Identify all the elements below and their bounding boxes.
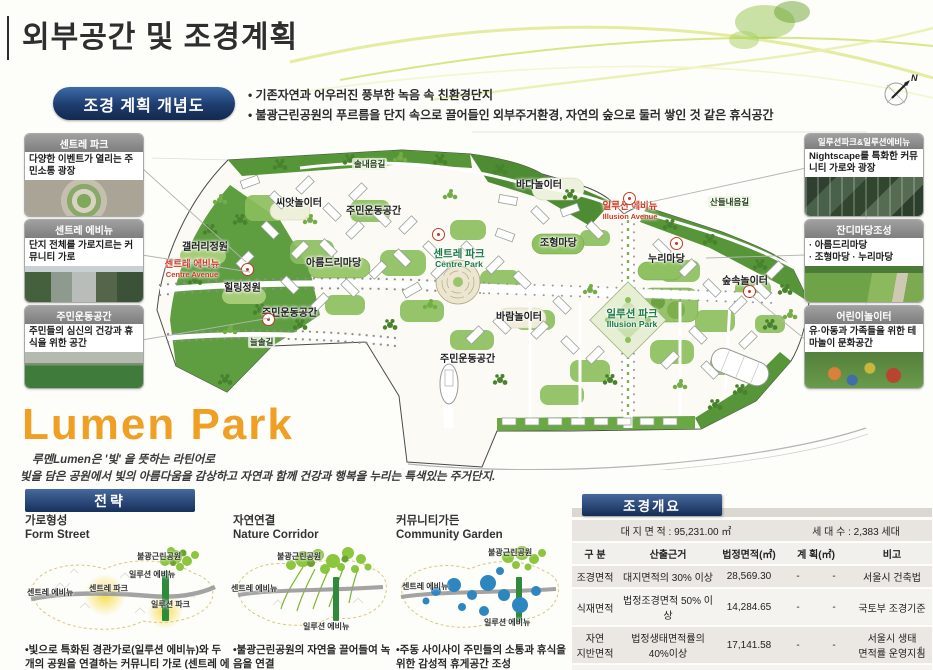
map-label-centre-park: 센트레 파크Centre Park — [422, 248, 496, 270]
lumen-note-1: 루멘Lumen은 '빛' 을 뜻하는 라틴어로 — [32, 451, 215, 467]
map-label-exercise-area-1: 주민운동공간 — [346, 202, 401, 217]
callout-title: 센트레 에비뉴 — [25, 220, 143, 238]
map-label-illusion-park: 일루션 파크Illusion Park — [594, 308, 670, 330]
strategy-header: 전략 — [25, 489, 195, 512]
strategy-caption: •불광근린공원의 자연을 끌어들여 녹음을 연결 — [233, 643, 391, 670]
callout-desc: 다양한 이벤트가 열리는 주민소통 광장 — [25, 152, 143, 180]
households-value: 세 대 수 : 2,383 세대 — [780, 520, 932, 541]
photo-centre-avenue — [25, 266, 143, 302]
map-label-seed-playground: 씨앗놀이터 — [276, 194, 322, 209]
table-row: 식재면적 법정조경면적 50% 이상 14,284.65 - - 국토부 조경기… — [572, 589, 932, 625]
map-label-gallery-garden: 갤러리정원 — [182, 238, 228, 253]
callout-centre-park: 센트레 파크 다양한 이벤트가 열리는 주민소통 광장 — [24, 133, 144, 217]
map-label-sea-playground: 바다놀이터 — [516, 176, 562, 191]
map-label-healing-garden: 힐링정원 — [224, 279, 261, 294]
map-label-areumdeuri-yard: 아름드리마당 — [306, 254, 361, 269]
map-marker — [262, 313, 275, 326]
map-label-neulsol-trail: 늘솔길 — [248, 336, 275, 348]
photo-centre-park — [25, 180, 143, 216]
callout-desc: 단지 전체를 가로지르는 커뮤니티 가로 — [25, 238, 143, 266]
map-label-solnaeum-trail: 솔내음길 — [352, 158, 387, 170]
page-title: 외부공간 및 조경계획 — [22, 12, 298, 56]
callout-title: 센트레 파크 — [25, 134, 143, 152]
col-category: 구 분 — [572, 543, 618, 564]
strategy-diagram-community-garden: 불광근린공원 센트레 에비뉴 일루션 에비뉴 — [396, 543, 566, 643]
diagram-label: 센트레 파크 — [89, 585, 128, 594]
lumen-note-2: 빛을 담은 공원에서 빛의 아름다움을 감상하고 자연과 함께 건강과 행복을 … — [20, 468, 495, 484]
diagram-label: 일루션 에비뉴 — [303, 621, 349, 632]
diagram-label: 일루션 에비뉴 — [129, 569, 175, 580]
map-marker — [241, 263, 254, 276]
callout-centre-avenue: 센트레 에비뉴 단지 전체를 가로지르는 커뮤니티 가로 — [24, 219, 144, 303]
photo-children-playground — [805, 352, 923, 388]
table-row: 생태면적률 대지면적의 45% 이상 42,853.95 - - 서울시 생태면… — [572, 665, 932, 670]
diagram-label: 불광근린공원 — [277, 551, 321, 562]
table-row: 조경면적 대지면적의 30% 이상 28,569.30 - - 서울시 건축법 — [572, 566, 932, 587]
board-page: 외부공간 및 조경계획 조경 계획 개념도 • 기존자연과 어우러진 풍부한 녹… — [0, 0, 933, 670]
strategy-title: 가로형성 Form Street — [25, 514, 230, 543]
north-compass-icon: N — [874, 68, 922, 116]
photo-lawn-yard — [805, 266, 923, 302]
col-legal-area: 법정면적(㎡) — [718, 543, 780, 564]
photo-exercise-space — [25, 352, 143, 388]
map-label-nuri-yard: 누리마당 — [648, 250, 685, 265]
col-plan-area: 계 획(㎡) — [780, 543, 852, 564]
strategy-item-nature-corridor: 자연연결 Nature Corridor — [233, 514, 391, 670]
callout-title: 주민운동공간 — [25, 306, 143, 324]
map-marker — [432, 228, 445, 241]
compass-n-label: N — [911, 73, 918, 83]
site-area-value: 대 지 면 적 : 95,231.00 ㎡ — [572, 520, 780, 541]
map-label-johyeong-yard: 조형마당 — [540, 234, 577, 249]
diagram-label: 센트레 에비뉴 — [231, 583, 277, 594]
col-remarks: 비고 — [852, 543, 932, 564]
title-accent-rule — [7, 16, 9, 60]
overview-column-headers: 구 분 산출근거 법정면적(㎡) 계 획(㎡) 비고 — [572, 543, 932, 564]
callout-illusion-park-avenue: 일루션파크&일루션에비뉴 Nightscape를 특화한 커뮤니티 가로와 광장 — [804, 133, 924, 217]
strategy-title: 커뮤니티가든 Community Garden — [396, 514, 568, 543]
concept-bullets: • 기존자연과 어우러진 풍부한 녹음 속 친환경단지 • 불광근린공원의 푸르… — [248, 86, 774, 126]
strategy-diagram-form-street: 불광근린공원 일루션 에비뉴 센트레 에비뉴 센트레 파크 일루션 파크 — [25, 543, 225, 643]
map-marker — [670, 237, 683, 250]
callout-desc: 주민들의 심신의 건강과 휴식을 위한 공간 — [25, 324, 143, 352]
callout-desc: 유·아동과 가족들을 위한 테마놀이 문화공간 — [805, 324, 923, 352]
callout-children-playground: 어린이놀이터 유·아동과 가족들을 위한 테마놀이 문화공간 — [804, 305, 924, 389]
diagram-label: 센트레 에비뉴 — [402, 581, 448, 592]
map-label-sandeul-trail: 산들내음길 — [708, 196, 751, 208]
strategy-caption: •빛으로 특화된 경관가로(일루션 에비뉴)와 두 개의 공원을 연결하는 커뮤… — [25, 643, 230, 670]
strategy-diagram-nature-corridor: 불광근린공원 센트레 에비뉴 일루션 에비뉴 — [233, 543, 391, 643]
strategy-caption: •주동 사이사이 주민들의 소통과 휴식을 위한 감성적 휴게공간 조성 — [396, 643, 568, 670]
strategy-item-form-street: 가로형성 Form Street — [25, 514, 230, 670]
page-number: 1 — [918, 645, 924, 657]
concept-plan-badge: 조경 계획 개념도 — [53, 87, 235, 120]
diagram-label: 불광근린공원 — [137, 551, 181, 562]
concept-bullet-2: • 불광근린공원의 푸르름을 단지 속으로 끌어들인 외부주거환경, 자연의 숲… — [248, 106, 774, 126]
col-basis: 산출근거 — [618, 543, 718, 564]
map-label-wind-playground: 바람놀이터 — [496, 308, 542, 323]
photo-illusion-nightscape — [805, 177, 923, 216]
map-label-exercise-area-3: 주민운동공간 — [440, 350, 495, 365]
callout-title: 잔디마당조성 — [805, 220, 923, 238]
diagram-label: 센트레 에비뉴 — [27, 587, 73, 598]
strategy-title: 자연연결 Nature Corridor — [233, 514, 391, 543]
callout-title: 어린이놀이터 — [805, 306, 923, 324]
map-label-forest-playground: 숲속놀이터 — [722, 272, 768, 287]
map-label-centre-avenue: 센트레 에비뉴Centre Avenue — [150, 260, 234, 280]
callout-desc: · 아름드리마당 · 조형마당 · 누리마당 — [805, 238, 923, 266]
overview-info-row: 대 지 면 적 : 95,231.00 ㎡ 세 대 수 : 2,383 세대 — [572, 520, 932, 541]
diagram-label: 일루션 에비뉴 — [484, 617, 530, 628]
callout-desc: Nightscape를 특화한 커뮤니티 가로와 광장 — [805, 149, 923, 177]
table-row: 자연 지반면적 법정생태면적률의 40%이상 17,141.58 - - 서울시… — [572, 627, 932, 663]
diagram-label: 일루션 파크 — [151, 601, 190, 610]
overview-header: 조경개요 — [582, 494, 722, 516]
callout-exercise-space: 주민운동공간 주민들의 심신의 건강과 휴식을 위한 공간 — [24, 305, 144, 389]
callout-lawn-yards: 잔디마당조성 · 아름드리마당 · 조형마당 · 누리마당 — [804, 219, 924, 303]
diagram-label: 불광근린공원 — [488, 547, 532, 558]
strategy-item-community-garden: 커뮤니티가든 Community Garden 불광근린공원 — [396, 514, 568, 670]
lumen-park-title: Lumen Park — [22, 400, 294, 450]
concept-bullet-1: • 기존자연과 어우러진 풍부한 녹음 속 친환경단지 — [248, 86, 774, 106]
map-marker — [623, 192, 636, 205]
callout-title: 일루션파크&일루션에비뉴 — [805, 134, 923, 149]
map-marker — [743, 285, 756, 298]
